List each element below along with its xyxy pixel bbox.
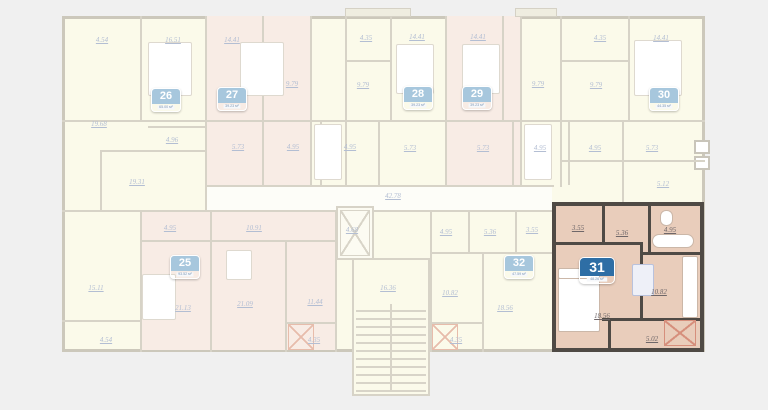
- apartment-number: 32: [505, 256, 533, 271]
- apartment-number: 29: [463, 87, 491, 102]
- wall: [602, 206, 605, 242]
- floorplan-canvas: 4.54 16.51 19.68 4.96 19.31 14.41 9.79 5…: [0, 0, 768, 410]
- bathtub: [652, 234, 694, 248]
- apartment-badge-31[interactable]: 31 48.26 м²: [579, 257, 615, 284]
- apartment-area-strip: 48.26 м²: [587, 277, 607, 281]
- apartment-area-strip: 39.23 м²: [224, 104, 241, 108]
- dining-table: [632, 264, 654, 296]
- apartment-number: 25: [171, 256, 199, 271]
- kitchen-counter: [682, 256, 698, 318]
- toilet: [660, 210, 673, 226]
- apartment-region-30[interactable]: [562, 16, 705, 202]
- apartment-region-32[interactable]: [432, 212, 552, 352]
- apartment-badge-29[interactable]: 29 39.23 м²: [462, 86, 492, 110]
- wall: [556, 242, 640, 245]
- apartment-area-strip: 47.59 м²: [511, 272, 528, 276]
- apartment-area-strip: 39.23 м²: [469, 103, 486, 107]
- apartment-badge-28[interactable]: 28 39.23 м²: [403, 86, 433, 110]
- elevator-cross: [340, 210, 370, 256]
- stair-rail: [390, 304, 392, 392]
- apartment-badge-32[interactable]: 32 47.59 м²: [504, 255, 534, 279]
- wall: [640, 252, 700, 255]
- apartment-badge-26[interactable]: 26 65.00 м²: [151, 88, 181, 112]
- apartment-area-strip: 44.35 м²: [656, 104, 673, 108]
- wall: [648, 206, 651, 252]
- wall: [608, 321, 611, 348]
- apartment-region-25[interactable]: [62, 212, 335, 352]
- apartment-region-31[interactable]: [552, 202, 704, 352]
- balcony-hatch: [664, 320, 696, 346]
- apartment-badge-25[interactable]: 25 93.52 м²: [170, 255, 200, 279]
- floor-plan: 4.54 16.51 19.68 4.96 19.31 14.41 9.79 5…: [0, 0, 768, 410]
- apartment-region-26[interactable]: [62, 16, 208, 210]
- apartment-badge-27[interactable]: 27 39.23 м²: [217, 87, 247, 111]
- apartment-area-strip: 93.52 м²: [177, 272, 194, 276]
- stairwell: [352, 258, 430, 396]
- apartment-badge-30[interactable]: 30 44.35 м²: [649, 87, 679, 111]
- corridor: [207, 187, 552, 210]
- apartment-number: 31: [580, 258, 614, 276]
- apartment-number: 28: [404, 87, 432, 102]
- apartment-number: 27: [218, 88, 246, 103]
- apartment-number: 26: [152, 89, 180, 104]
- apartment-area-strip: 65.00 м²: [158, 105, 175, 109]
- apartment-area-strip: 39.23 м²: [410, 103, 427, 107]
- apartment-number: 30: [650, 88, 678, 103]
- elevator-shaft: [336, 206, 374, 260]
